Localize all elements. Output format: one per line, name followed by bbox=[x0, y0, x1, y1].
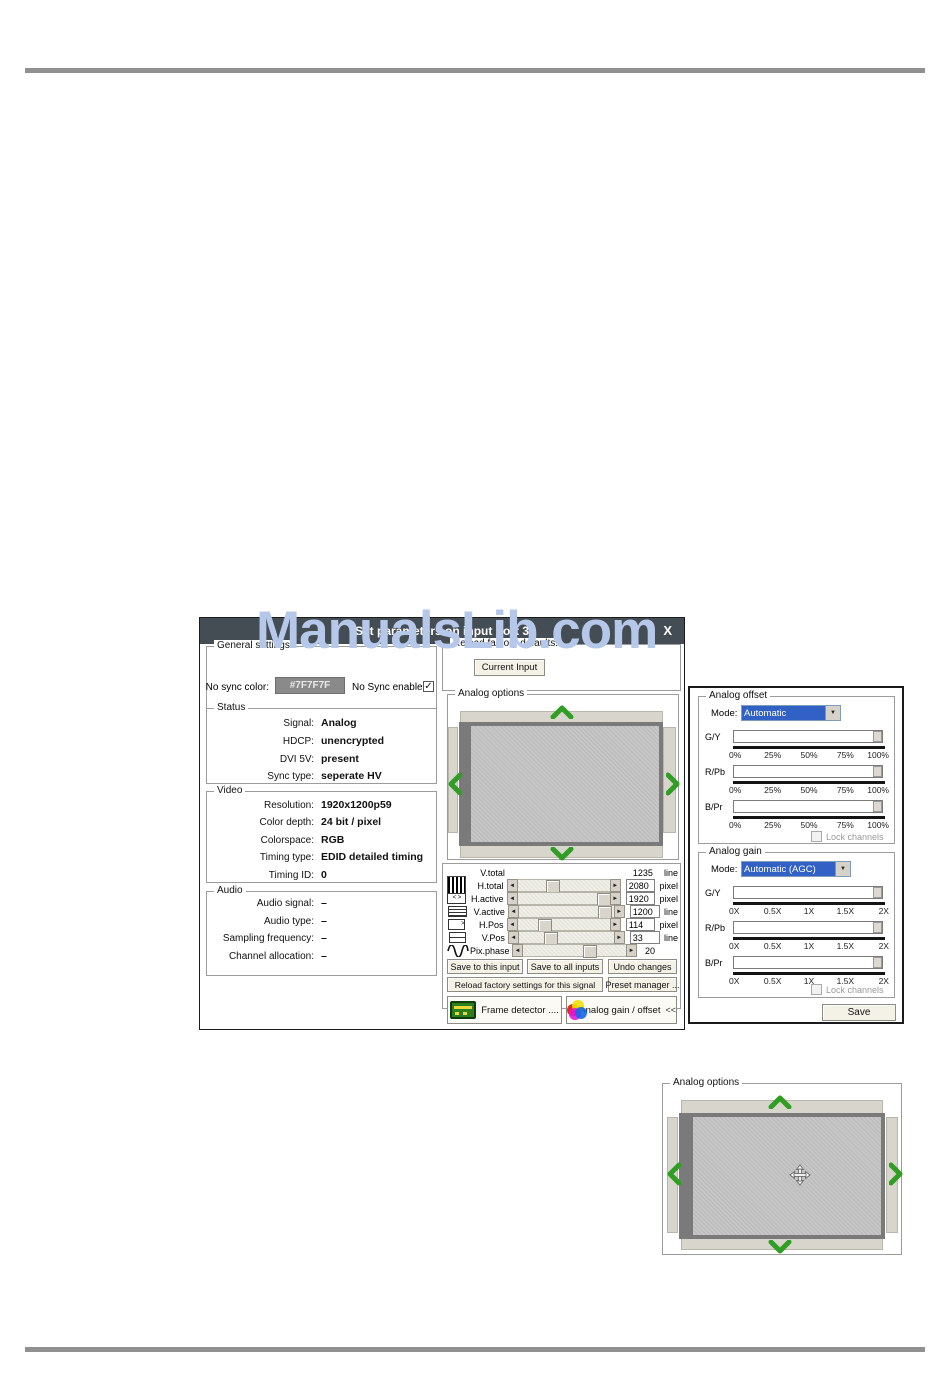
video-row: Timing ID:0 bbox=[209, 869, 327, 881]
offset-mode-dropdown[interactable]: Automatic ▼ bbox=[741, 705, 841, 721]
tick-label: 1.5X bbox=[827, 941, 863, 951]
slider-right-arrow-icon[interactable]: ► bbox=[610, 918, 621, 931]
undo-changes-button[interactable]: Undo changes bbox=[608, 959, 677, 974]
frame-detector-button[interactable]: Frame detector .... bbox=[447, 996, 562, 1024]
no-sync-enable-checkbox[interactable]: ✓ bbox=[423, 681, 434, 692]
gain-lock-checkbox[interactable] bbox=[811, 984, 822, 995]
gain-rpb-slider[interactable] bbox=[733, 921, 883, 934]
tick-label: 25% bbox=[754, 820, 790, 830]
chevron-down-icon[interactable]: ▼ bbox=[825, 706, 840, 720]
field-value: 0 bbox=[321, 869, 327, 881]
offset-lock-label: Lock channels bbox=[826, 832, 884, 842]
slider-right-arrow-icon[interactable]: ► bbox=[610, 879, 621, 892]
status-row: HDCP:unencrypted bbox=[209, 735, 384, 747]
h-pos-icon: > bbox=[446, 918, 468, 931]
slider-left-arrow-icon[interactable]: ◄ bbox=[508, 931, 519, 944]
offset-rpb-track bbox=[733, 781, 885, 784]
vpos-slider[interactable]: ◄ ► bbox=[508, 931, 625, 944]
gain-gy-scale: 0X0.5X1X1.5X2X bbox=[729, 906, 889, 916]
pixphase-label: Pix.phase bbox=[470, 946, 512, 956]
field-label: Channel allocation: bbox=[209, 951, 314, 962]
reload-defaults-group: Reload factory defaults: Current Input bbox=[442, 644, 681, 691]
slider-track[interactable] bbox=[518, 879, 610, 892]
offset-gy-label: G/Y bbox=[705, 732, 733, 742]
hactive-slider[interactable]: ◄ ► bbox=[507, 892, 621, 905]
offset-rpb-row: R/Pb bbox=[705, 765, 883, 778]
tick-label: 1X bbox=[791, 941, 827, 951]
offset-gy-row: G/Y bbox=[705, 730, 883, 743]
audio-group: Audio Audio signal:– Audio type:– Sampli… bbox=[206, 891, 437, 976]
field-label: Timing type: bbox=[209, 852, 314, 863]
collapse-glyph: << bbox=[665, 1005, 676, 1015]
tick-label: 0% bbox=[729, 820, 754, 830]
hpos-unit: pixel bbox=[659, 920, 678, 930]
timing-row-hactive: < > H.active ◄ ► 1920 pixel bbox=[446, 892, 678, 905]
tick-label: 75% bbox=[827, 785, 863, 795]
field-label: Colorspace: bbox=[209, 835, 314, 846]
field-label: Color depth: bbox=[209, 817, 314, 828]
close-icon[interactable]: X bbox=[663, 623, 672, 638]
arrow-left-icon[interactable] bbox=[667, 1162, 681, 1186]
tick-label: 1X bbox=[791, 906, 827, 916]
field-label: Sync type: bbox=[209, 771, 314, 782]
analog-gain-offset-label: Analog gain / offset bbox=[579, 1005, 660, 1016]
gain-bpr-label: B/Pr bbox=[705, 958, 733, 968]
vpos-value-field[interactable]: 33 bbox=[630, 931, 660, 944]
field-label: Audio signal: bbox=[209, 898, 314, 909]
htotal-unit: pixel bbox=[659, 881, 678, 891]
tick-label: 100% bbox=[864, 750, 889, 760]
slider-thumb[interactable] bbox=[583, 945, 597, 958]
frame-detector-icon bbox=[450, 1001, 476, 1019]
v-pos-icon bbox=[446, 931, 468, 944]
analog-options-label-2: Analog options bbox=[670, 1077, 742, 1088]
field-value: – bbox=[321, 915, 327, 927]
offset-mode-label: Mode: bbox=[711, 708, 737, 719]
tick-label: 100% bbox=[864, 820, 889, 830]
arrow-right-icon[interactable] bbox=[889, 1162, 903, 1186]
analog-options-label: Analog options bbox=[455, 688, 527, 699]
field-value: present bbox=[321, 753, 359, 765]
hactive-unit: pixel bbox=[659, 894, 678, 904]
page-top-rule bbox=[25, 68, 925, 73]
tick-label: 0X bbox=[729, 976, 754, 986]
video-row: Colorspace:RGB bbox=[209, 834, 344, 846]
slider-right-arrow-icon[interactable]: ► bbox=[610, 892, 621, 905]
video-row: Resolution:1920x1200p59 bbox=[209, 799, 392, 811]
pixphase-value: 20 bbox=[642, 946, 674, 956]
htotal-value-field[interactable]: 2080 bbox=[626, 879, 656, 892]
save-to-all-inputs-button[interactable]: Save to all inputs bbox=[527, 959, 603, 974]
offset-bpr-track bbox=[733, 816, 885, 819]
hpos-slider[interactable]: ◄ ► bbox=[507, 918, 621, 931]
offset-rpb-scale: 0%25%50%75%100% bbox=[729, 785, 889, 795]
video-group: Video Resolution:1920x1200p59 Color dept… bbox=[206, 791, 437, 883]
timing-row-vactive: V.active ◄ ► 1200 line bbox=[446, 905, 678, 918]
audio-row: Audio type:– bbox=[209, 915, 327, 927]
reload-defaults-label: Reload factory defaults: bbox=[450, 638, 561, 649]
field-value: EDID detailed timing bbox=[321, 851, 423, 863]
field-label: Sampling frequency: bbox=[209, 933, 314, 944]
tick-label: 0X bbox=[729, 906, 754, 916]
status-label: Status bbox=[214, 702, 248, 713]
slider-right-arrow-icon[interactable]: ► bbox=[614, 905, 625, 918]
field-label: Audio type: bbox=[209, 916, 314, 927]
audio-row: Channel allocation:– bbox=[209, 950, 327, 962]
vactive-unit: line bbox=[664, 907, 678, 917]
color-wheel-icon bbox=[567, 1000, 574, 1020]
gain-gy-slider[interactable] bbox=[733, 886, 883, 899]
status-group: Status Signal:Analog HDCP:unencrypted DV… bbox=[206, 708, 437, 784]
htotal-label: H.total bbox=[468, 881, 507, 891]
gain-bpr-slider[interactable] bbox=[733, 956, 883, 969]
chevron-down-icon[interactable]: ▼ bbox=[835, 862, 850, 876]
vpos-label: V.Pos bbox=[468, 933, 507, 943]
tick-label: 75% bbox=[827, 820, 863, 830]
offset-lock-checkbox[interactable] bbox=[811, 831, 822, 842]
set-parameters-dialog: Set parameters on input port 3 X General… bbox=[199, 617, 685, 1030]
sine-wave-icon bbox=[446, 944, 470, 957]
slider-thumb[interactable] bbox=[873, 801, 882, 812]
slider-track[interactable] bbox=[519, 931, 614, 944]
tick-label: 2X bbox=[864, 941, 889, 951]
offset-mode-value: Automatic bbox=[742, 706, 825, 720]
dialog-title: Set parameters on input port 3 bbox=[355, 624, 529, 638]
hpos-label: H.Pos bbox=[468, 920, 507, 930]
v-active-icon bbox=[446, 905, 468, 918]
gain-rpb-label: R/Pb bbox=[705, 923, 733, 933]
tick-label: 25% bbox=[754, 785, 790, 795]
timing-row-htotal: H.total ◄ ► 2080 pixel bbox=[446, 879, 678, 892]
slider-left-arrow-icon[interactable]: ◄ bbox=[508, 905, 519, 918]
slider-track[interactable] bbox=[518, 918, 610, 931]
field-value: seperate HV bbox=[321, 770, 382, 782]
field-value: 24 bit / pixel bbox=[321, 816, 381, 828]
timing-row-pixphase: Pix.phase ◄ ► 20 bbox=[446, 944, 678, 957]
tick-label: 25% bbox=[754, 750, 790, 760]
gain-rpb-row: R/Pb bbox=[705, 921, 883, 934]
video-label: Video bbox=[214, 785, 245, 796]
analog-offset-label: Analog offset bbox=[706, 690, 770, 701]
manual-page: Set parameters on input port 3 X General… bbox=[0, 0, 950, 1387]
analog-offset-group: Analog offset Mode: Automatic ▼ G/Y 0%25… bbox=[698, 696, 895, 844]
general-settings-label: General settings bbox=[214, 640, 293, 651]
tick-label: 50% bbox=[791, 785, 827, 795]
picture-preview[interactable] bbox=[459, 722, 663, 846]
timing-row-vpos: V.Pos ◄ ► 33 line bbox=[446, 931, 678, 944]
tick-label: 2X bbox=[864, 906, 889, 916]
vactive-label: V.active bbox=[468, 907, 507, 917]
audio-label: Audio bbox=[214, 885, 246, 896]
timing-box: V.total 1235 line H.total ◄ ► 2080 pixel… bbox=[442, 863, 681, 1009]
arrow-down-icon[interactable] bbox=[550, 847, 574, 861]
tick-label: 0% bbox=[729, 750, 754, 760]
no-sync-color-label: No sync color: bbox=[203, 682, 269, 693]
slider-track[interactable] bbox=[523, 944, 626, 957]
audio-row: Sampling frequency:– bbox=[209, 932, 327, 944]
analog-options-group: Analog options bbox=[447, 694, 679, 860]
preset-manager-button[interactable]: Preset manager ... bbox=[608, 977, 677, 992]
arrow-left-icon[interactable] bbox=[448, 772, 462, 796]
gain-mode-label: Mode: bbox=[711, 864, 737, 875]
tick-label: 50% bbox=[791, 820, 827, 830]
hactive-label: H.active bbox=[468, 894, 507, 904]
tick-label: 0.5X bbox=[754, 906, 790, 916]
offset-bpr-row: B/Pr bbox=[705, 800, 883, 813]
vactive-slider[interactable]: ◄ ► bbox=[508, 905, 625, 918]
field-value: 1920x1200p59 bbox=[321, 799, 392, 811]
offset-gy-slider[interactable] bbox=[733, 730, 883, 743]
slider-thumb[interactable] bbox=[873, 731, 882, 742]
video-row: Timing type:EDID detailed timing bbox=[209, 851, 423, 863]
status-row: Sync type:seperate HV bbox=[209, 770, 382, 782]
gain-rpb-scale: 0X0.5X1X1.5X2X bbox=[729, 941, 889, 951]
arrow-right-icon[interactable] bbox=[666, 772, 680, 796]
tick-label: 0.5X bbox=[754, 941, 790, 951]
page-bottom-rule bbox=[25, 1347, 925, 1352]
htotal-slider[interactable]: ◄ ► bbox=[507, 879, 621, 892]
tick-label: 50% bbox=[791, 750, 827, 760]
field-value: RGB bbox=[321, 834, 344, 846]
vtotal-label: V.total bbox=[468, 868, 507, 878]
offset-gy-track bbox=[733, 746, 885, 749]
gain-gy-label: G/Y bbox=[705, 888, 733, 898]
field-value: unencrypted bbox=[321, 735, 384, 747]
slider-left-arrow-icon[interactable]: ◄ bbox=[507, 892, 518, 905]
analog-gain-group: Analog gain Mode: Automatic (AGC) ▼ G/Y … bbox=[698, 852, 895, 998]
tick-label: 75% bbox=[827, 750, 863, 760]
gain-mode-dropdown[interactable]: Automatic (AGC) ▼ bbox=[741, 861, 851, 877]
offset-bpr-slider[interactable] bbox=[733, 800, 883, 813]
video-row: Color depth:24 bit / pixel bbox=[209, 816, 381, 828]
barcode-icon bbox=[446, 879, 468, 892]
field-value: – bbox=[321, 932, 327, 944]
slider-thumb[interactable] bbox=[873, 887, 882, 898]
slider-thumb[interactable] bbox=[873, 922, 882, 933]
move-cursor-icon[interactable] bbox=[789, 1164, 811, 1191]
gain-gy-track bbox=[733, 902, 885, 905]
analog-gain-offset-panel: Analog offset Mode: Automatic ▼ G/Y 0%25… bbox=[688, 686, 904, 1024]
no-sync-enable-label: No Sync enable bbox=[352, 682, 423, 693]
slider-left-arrow-icon[interactable]: ◄ bbox=[512, 944, 523, 957]
save-button[interactable]: Save bbox=[822, 1004, 896, 1021]
field-label: HDCP: bbox=[209, 736, 314, 747]
status-row: DVI 5V:present bbox=[209, 753, 359, 765]
vtotal-unit: line bbox=[664, 868, 678, 878]
field-label: Timing ID: bbox=[209, 870, 314, 881]
arrow-up-icon[interactable] bbox=[768, 1095, 792, 1109]
slider-left-arrow-icon[interactable]: ◄ bbox=[507, 918, 518, 931]
timing-row-hpos: > H.Pos ◄ ► 114 pixel bbox=[446, 918, 678, 931]
offset-gy-scale: 0%25%50%75%100% bbox=[729, 750, 889, 760]
current-input-button[interactable]: Current Input bbox=[474, 659, 545, 676]
field-value: – bbox=[321, 950, 327, 962]
analog-gain-label: Analog gain bbox=[706, 846, 765, 857]
field-label: DVI 5V: bbox=[209, 754, 314, 765]
slider-thumb[interactable] bbox=[873, 957, 882, 968]
slider-thumb[interactable] bbox=[873, 766, 882, 777]
h-active-icon: < > bbox=[446, 892, 468, 905]
slider-right-arrow-icon[interactable]: ► bbox=[614, 931, 625, 944]
timing-row-vtotal: V.total 1235 line bbox=[446, 866, 678, 879]
vtotal-value: 1235 bbox=[630, 868, 660, 878]
tick-label: 100% bbox=[864, 785, 889, 795]
gain-lock-label: Lock channels bbox=[826, 985, 884, 995]
gain-gy-row: G/Y bbox=[705, 886, 883, 899]
field-value: – bbox=[321, 897, 327, 909]
audio-row: Audio signal:– bbox=[209, 897, 327, 909]
offset-rpb-slider[interactable] bbox=[733, 765, 883, 778]
reload-factory-settings-button[interactable]: Reload factory settings for this signal bbox=[447, 977, 603, 992]
slider-left-arrow-icon[interactable]: ◄ bbox=[507, 879, 518, 892]
frame-detector-label: Frame detector .... bbox=[481, 1005, 559, 1016]
slider-right-arrow-icon[interactable]: ► bbox=[626, 944, 637, 957]
gain-mode-value: Automatic (AGC) bbox=[742, 862, 835, 876]
tick-label: 0% bbox=[729, 785, 754, 795]
analog-options-panel: Analog options bbox=[658, 1075, 905, 1260]
gain-bpr-row: B/Pr bbox=[705, 956, 883, 969]
tick-label: 1.5X bbox=[827, 906, 863, 916]
tick-label: 0X bbox=[729, 941, 754, 951]
analog-gain-offset-button[interactable]: Analog gain / offset << bbox=[566, 996, 677, 1024]
offset-bpr-scale: 0%25%50%75%100% bbox=[729, 820, 889, 830]
hpos-value-field[interactable]: 114 bbox=[626, 918, 656, 931]
save-to-this-input-button[interactable]: Save to this input bbox=[447, 959, 523, 974]
gain-bpr-track bbox=[733, 972, 885, 975]
analog-options-group-2: Analog options bbox=[662, 1083, 902, 1255]
slider-track[interactable] bbox=[518, 892, 610, 905]
offset-rpb-label: R/Pb bbox=[705, 767, 733, 777]
vpos-unit: line bbox=[664, 933, 678, 943]
no-sync-color-button[interactable]: #7F7F7F bbox=[275, 677, 345, 694]
status-row: Signal:Analog bbox=[209, 717, 357, 729]
field-value: Analog bbox=[321, 717, 357, 729]
arrow-down-icon[interactable] bbox=[768, 1240, 792, 1254]
field-label: Resolution: bbox=[209, 800, 314, 811]
gain-rpb-track bbox=[733, 937, 885, 940]
gain-lock-row: Lock channels bbox=[811, 984, 884, 995]
pixphase-slider[interactable]: ◄ ► bbox=[512, 944, 637, 957]
tick-label: 0.5X bbox=[754, 976, 790, 986]
hactive-value-field[interactable]: 1920 bbox=[626, 892, 656, 905]
offset-lock-row: Lock channels bbox=[811, 831, 884, 842]
arrow-up-icon[interactable] bbox=[550, 705, 574, 719]
vactive-value-field[interactable]: 1200 bbox=[630, 905, 660, 918]
field-label: Signal: bbox=[209, 718, 314, 729]
picture-preview[interactable] bbox=[679, 1113, 885, 1239]
offset-bpr-label: B/Pr bbox=[705, 802, 733, 812]
slider-track[interactable] bbox=[519, 905, 614, 918]
